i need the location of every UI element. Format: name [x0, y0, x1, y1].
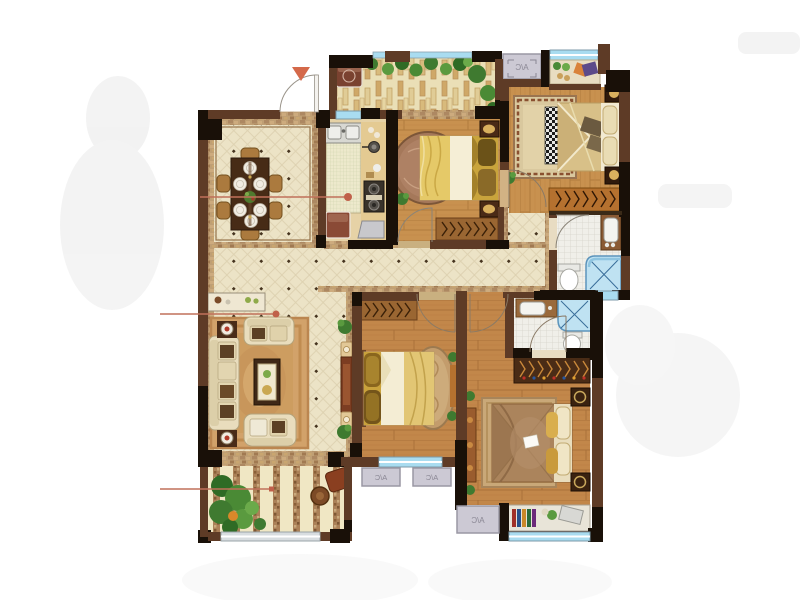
- svg-text:A/C: A/C: [471, 516, 485, 525]
- svg-text:A/C: A/C: [425, 473, 438, 482]
- svg-text:A/C: A/C: [374, 473, 387, 482]
- svg-text:A/C: A/C: [515, 63, 529, 72]
